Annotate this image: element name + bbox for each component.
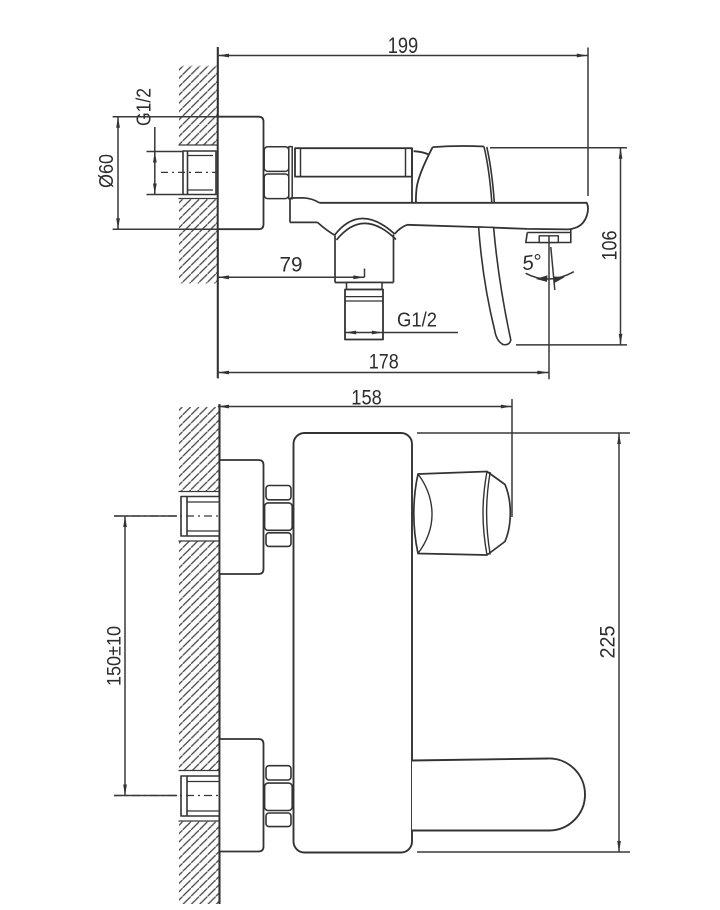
svg-text:199: 199 (388, 33, 419, 58)
svg-text:Ø60: Ø60 (96, 154, 118, 188)
svg-text:225: 225 (597, 626, 620, 659)
svg-text:79: 79 (280, 254, 303, 277)
svg-text:178: 178 (369, 351, 399, 374)
svg-text:158: 158 (351, 387, 382, 410)
svg-text:G1/2: G1/2 (134, 88, 156, 126)
svg-text:150±10: 150±10 (105, 626, 126, 686)
svg-text:G1/2: G1/2 (397, 310, 437, 332)
svg-text:106: 106 (599, 231, 622, 261)
svg-text:5°: 5° (521, 250, 544, 276)
